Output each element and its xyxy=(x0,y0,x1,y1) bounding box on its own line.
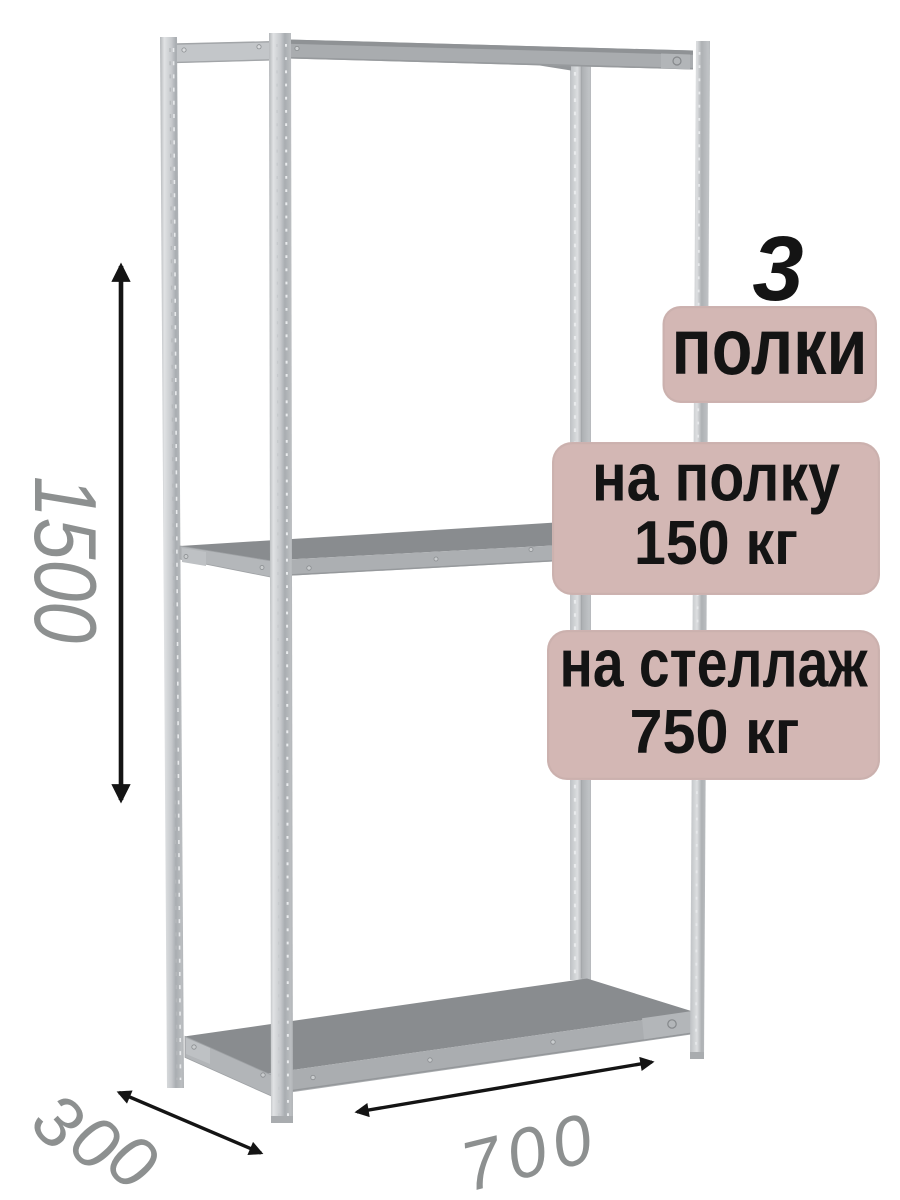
svg-text:750 кг: 750 кг xyxy=(630,698,800,767)
svg-text:на стеллаж: на стеллаж xyxy=(560,626,869,702)
svg-text:1500: 1500 xyxy=(16,476,115,643)
svg-text:150 кг: 150 кг xyxy=(634,509,798,578)
svg-text:700: 700 xyxy=(453,1097,607,1200)
svg-text:на полку: на полку xyxy=(592,440,840,516)
svg-text:полки: полки xyxy=(672,302,868,391)
